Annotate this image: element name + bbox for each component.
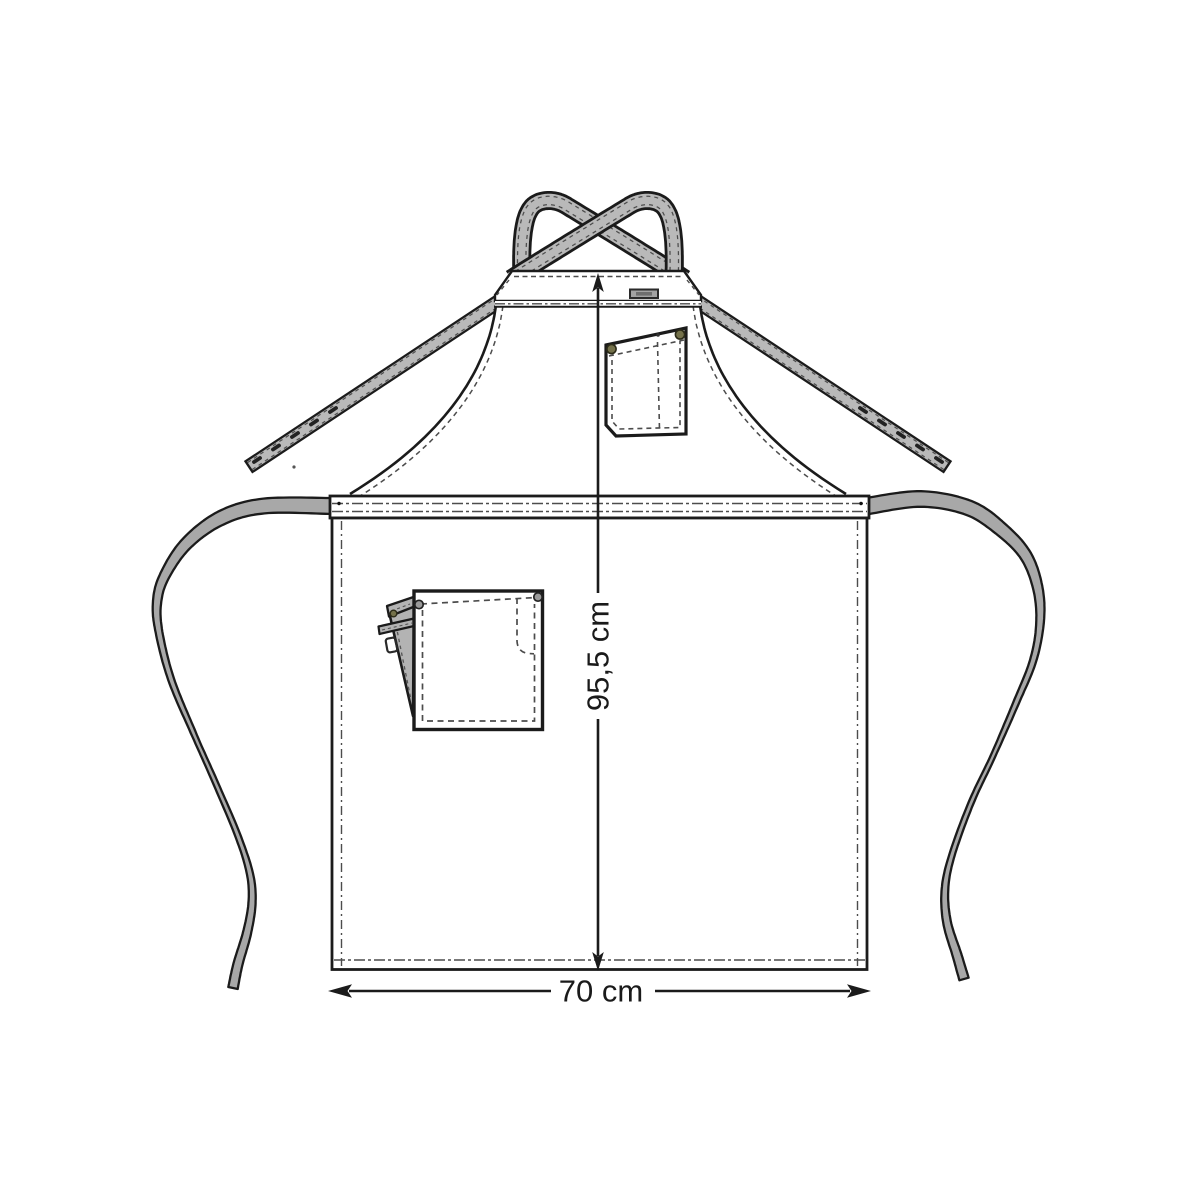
svg-text:95,5 cm: 95,5 cm [581, 601, 616, 711]
svg-text:70 cm: 70 cm [559, 974, 643, 1009]
